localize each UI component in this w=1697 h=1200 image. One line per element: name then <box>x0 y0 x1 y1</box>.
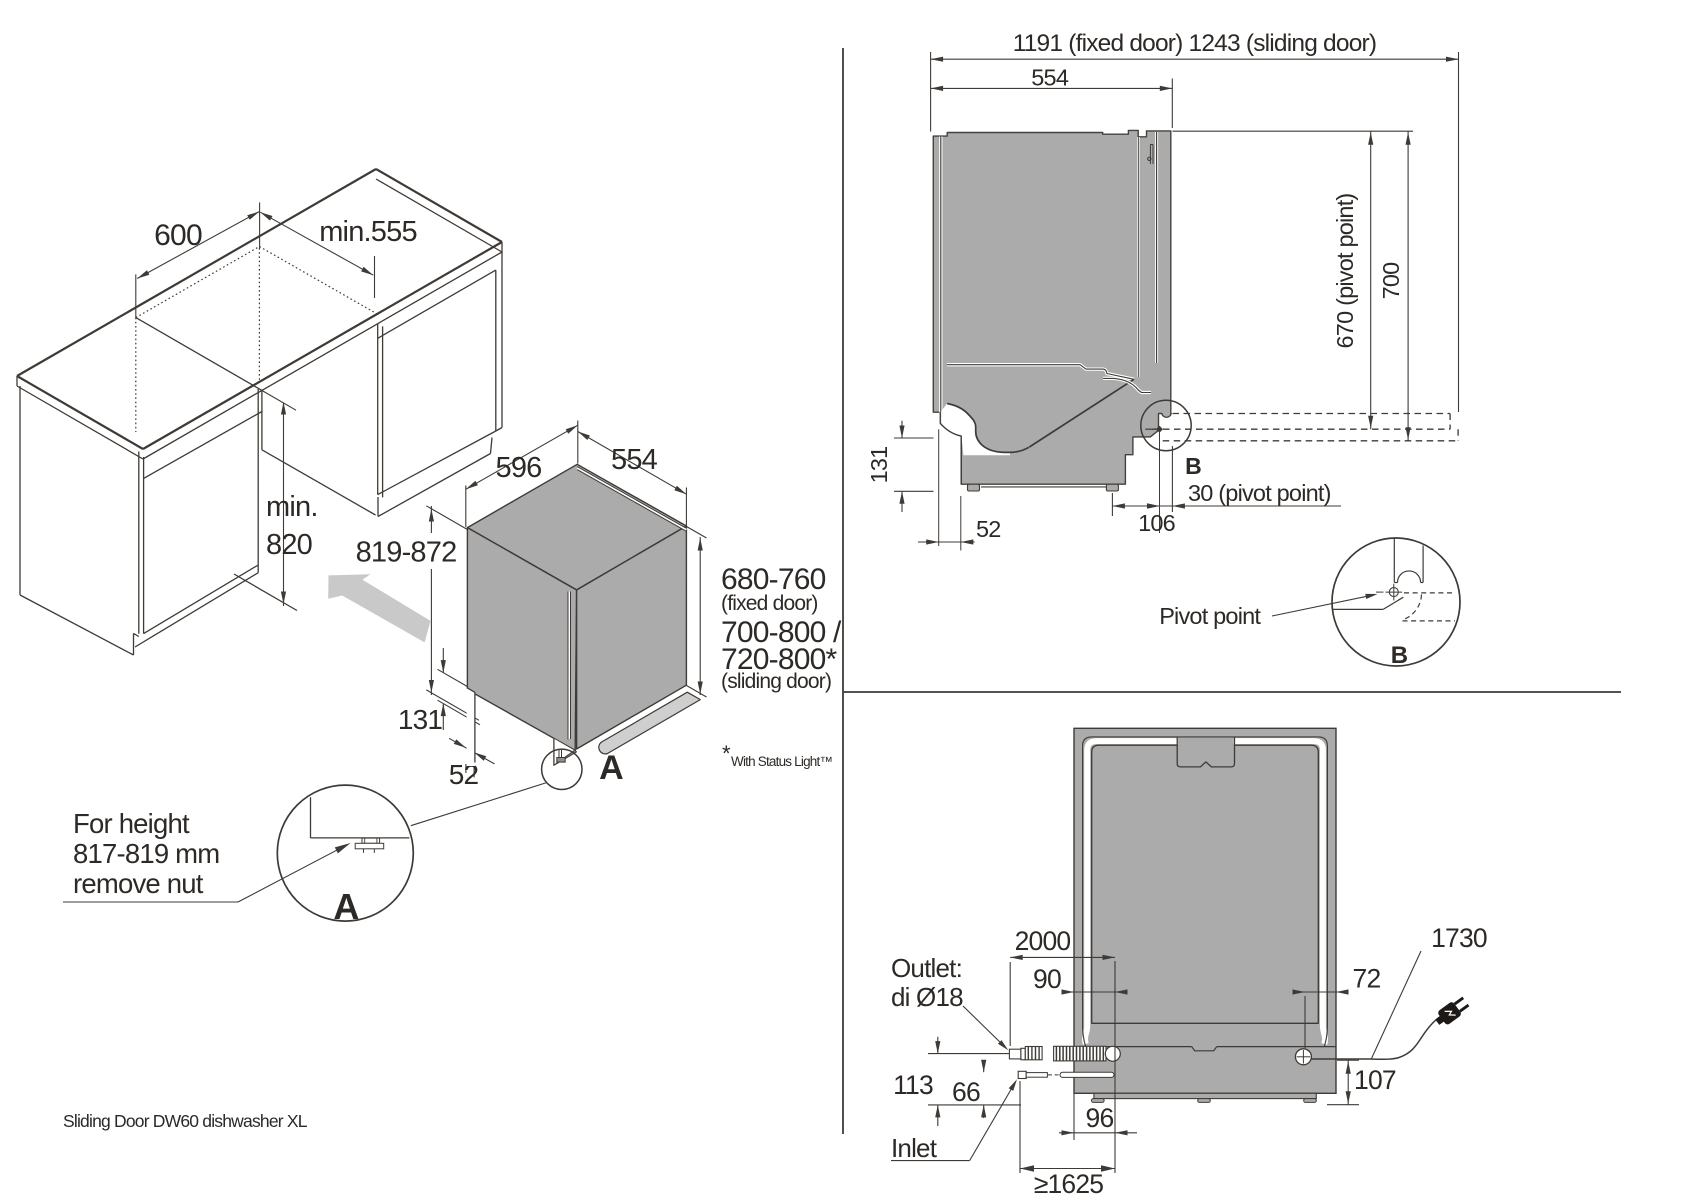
svg-text:A: A <box>599 749 623 787</box>
svg-text:Sliding Door DW60 dishwasher X: Sliding Door DW60 dishwasher XL <box>63 1111 308 1131</box>
svg-text:90: 90 <box>1033 964 1061 994</box>
svg-text:(sliding door): (sliding door) <box>721 670 831 693</box>
svg-text:1730: 1730 <box>1431 923 1487 953</box>
svg-text:819-872: 819-872 <box>356 537 457 569</box>
svg-text:Pivot point: Pivot point <box>1159 603 1261 629</box>
svg-text:817-819 mm: 817-819 mm <box>73 838 219 869</box>
svg-text:107: 107 <box>1354 1065 1396 1095</box>
svg-text:di Ø18: di Ø18 <box>891 982 963 1012</box>
svg-text:B: B <box>1185 453 1201 479</box>
svg-text:72: 72 <box>1353 964 1381 994</box>
svg-text:B: B <box>1391 642 1408 669</box>
svg-text:131: 131 <box>398 704 443 735</box>
svg-text:1191 (fixed door) 1243 (slidin: 1191 (fixed door) 1243 (sliding door) <box>1013 30 1377 57</box>
svg-text:A: A <box>333 886 359 927</box>
svg-text:596: 596 <box>496 452 542 484</box>
svg-text:*: * <box>722 741 731 766</box>
svg-text:700: 700 <box>1378 262 1404 300</box>
svg-text:min.555: min.555 <box>319 216 417 248</box>
svg-text:2000: 2000 <box>1015 926 1071 956</box>
svg-text:820: 820 <box>266 529 312 561</box>
svg-text:52: 52 <box>976 516 1001 542</box>
svg-text:≥1625: ≥1625 <box>1034 1169 1104 1199</box>
svg-text:670 (pivot point): 670 (pivot point) <box>1332 194 1358 349</box>
svg-text:Outlet:: Outlet: <box>891 953 962 983</box>
svg-text:66: 66 <box>952 1077 980 1107</box>
svg-text:554: 554 <box>1031 65 1069 91</box>
svg-text:With Status Light™: With Status Light™ <box>731 754 832 769</box>
svg-text:600: 600 <box>154 219 202 252</box>
svg-text:96: 96 <box>1086 1103 1114 1133</box>
svg-text:554: 554 <box>611 444 658 476</box>
svg-text:Inlet: Inlet <box>891 1133 938 1163</box>
svg-text:(fixed door): (fixed door) <box>721 592 818 615</box>
svg-text:min.: min. <box>266 491 318 523</box>
svg-text:131: 131 <box>866 447 892 484</box>
svg-text:remove nut: remove nut <box>73 868 204 899</box>
svg-text:113: 113 <box>893 1070 933 1100</box>
svg-text:106: 106 <box>1138 510 1176 536</box>
svg-text:For height: For height <box>73 808 190 839</box>
svg-text:30 (pivot point): 30 (pivot point) <box>1188 480 1331 506</box>
